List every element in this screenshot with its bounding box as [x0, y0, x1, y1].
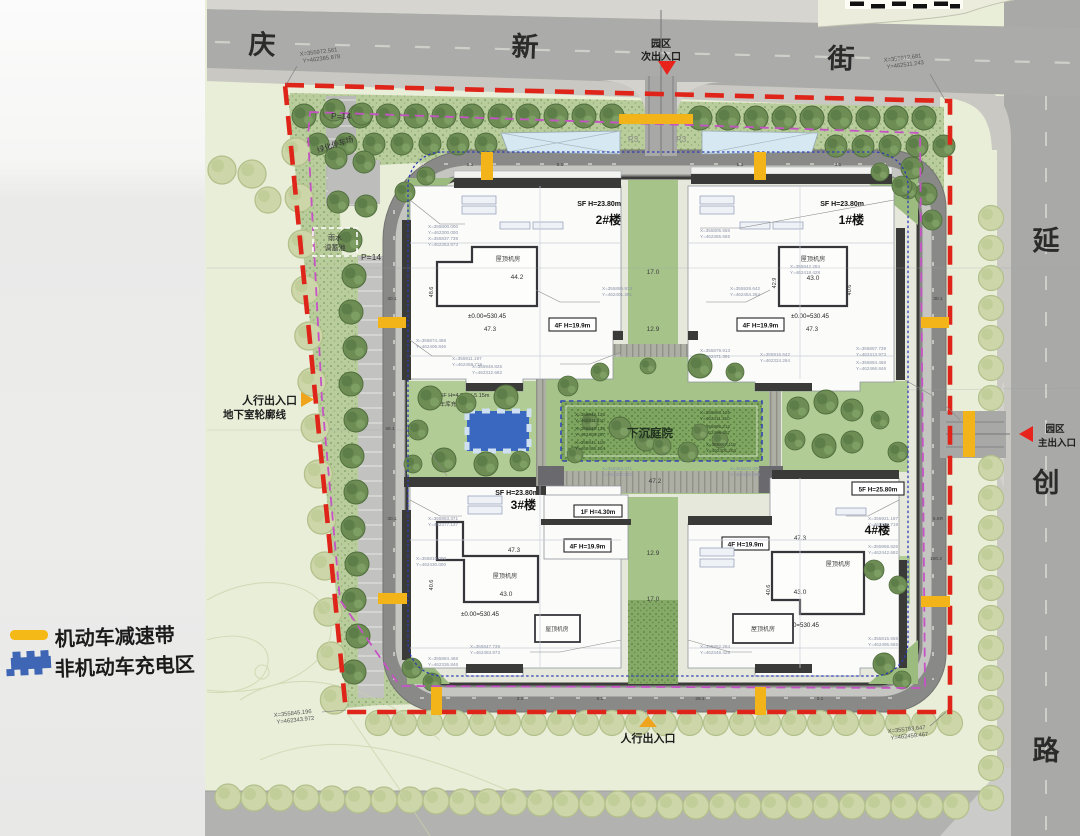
svg-text:X=355963.371: X=355963.371: [602, 466, 632, 471]
svg-text:Y=462307.137: Y=462307.137: [602, 472, 632, 477]
svg-text:47.3: 47.3: [484, 326, 497, 333]
svg-text:X=355953.371: X=355953.371: [428, 516, 458, 521]
svg-text:街: 街: [826, 44, 855, 75]
svg-text:X=355889.913: X=355889.913: [602, 286, 632, 291]
svg-text:屋顶机房: 屋顶机房: [496, 255, 521, 263]
svg-text:3.1: 3.1: [517, 696, 524, 702]
svg-text:±0.00=530.45: ±0.00=530.45: [791, 313, 830, 320]
svg-text:5F H=25.80m: 5F H=25.80m: [859, 487, 898, 494]
svg-text:43.0: 43.0: [500, 591, 513, 598]
svg-text:±0.00=530.45: ±0.00=530.45: [461, 611, 500, 618]
svg-text:园区: 园区: [1045, 424, 1065, 435]
svg-text:30.1: 30.1: [387, 516, 397, 522]
svg-text:2#楼: 2#楼: [596, 212, 621, 227]
svg-text:X=355841.118: X=355841.118: [575, 440, 605, 445]
svg-text:26.1: 26.1: [695, 696, 705, 702]
svg-text:4F H=19.9m: 4F H=19.9m: [555, 323, 591, 330]
svg-text:Y=462324.264: Y=462324.264: [760, 358, 790, 363]
svg-text:X=355847.739: X=355847.739: [470, 644, 500, 649]
svg-text:P=14: P=14: [331, 111, 351, 121]
svg-text:5.1: 5.1: [737, 162, 744, 168]
svg-text:P=14: P=14: [361, 252, 381, 262]
svg-text:4F H=19.9m: 4F H=19.9m: [728, 542, 764, 549]
svg-text:47.2: 47.2: [649, 478, 662, 485]
svg-text:X=355810.000: X=355810.000: [416, 556, 446, 561]
svg-text:X=355916.642: X=355916.642: [760, 352, 790, 357]
svg-text:X=355897.118: X=355897.118: [706, 442, 736, 447]
svg-text:100.2: 100.2: [930, 556, 942, 562]
svg-text:主出入口: 主出入口: [1038, 437, 1076, 449]
svg-text:下沉庭院: 下沉庭院: [627, 426, 673, 440]
svg-text:雨水: 雨水: [328, 233, 342, 242]
svg-text:30.1: 30.1: [387, 296, 397, 302]
svg-text:5.1: 5.1: [557, 162, 564, 168]
svg-text:X=355958.826: X=355958.826: [868, 544, 898, 549]
svg-text:X=355842.125: X=355842.125: [575, 412, 605, 417]
svg-text:Y=462411.310: Y=462411.310: [700, 416, 730, 421]
svg-text:X=355800.000: X=355800.000: [428, 224, 458, 229]
svg-text:人行出入口: 人行出入口: [242, 393, 297, 407]
svg-text:路: 路: [1033, 735, 1061, 766]
svg-text:Y=462495.555: Y=462495.555: [868, 642, 898, 647]
svg-text:屋顶机房: 屋顶机房: [493, 572, 518, 580]
svg-text:X=355894.468: X=355894.468: [856, 360, 886, 365]
svg-text:Y=462413.973: Y=462413.973: [856, 352, 886, 357]
svg-text:Y=462401.391: Y=462401.391: [602, 292, 632, 297]
svg-text:X=355842.125: X=355842.125: [575, 426, 605, 431]
svg-text:42.9: 42.9: [772, 278, 778, 289]
svg-text:园区: 园区: [651, 38, 671, 50]
svg-text:X=355926.642: X=355926.642: [730, 286, 760, 291]
svg-text:17.0: 17.0: [647, 269, 660, 276]
svg-text:40.6: 40.6: [766, 585, 772, 596]
svg-text:屋顶机房: 屋顶机房: [545, 625, 568, 633]
svg-text:Y=462300.000: Y=462300.000: [428, 230, 458, 235]
svg-text:4F H=19.9m: 4F H=19.9m: [570, 544, 606, 551]
svg-text:5.6R: 5.6R: [933, 516, 944, 522]
svg-text:Y=462483.973: Y=462483.973: [470, 650, 500, 655]
svg-text:Y=462418.428: Y=462418.428: [790, 270, 820, 275]
svg-text:Y=462466.846: Y=462466.846: [856, 366, 886, 371]
svg-text:17.0: 17.0: [647, 596, 660, 603]
svg-text:Y=462411.310: Y=462411.310: [575, 418, 605, 423]
svg-text:屋顶机房: 屋顶机房: [801, 255, 826, 263]
svg-text:44.2: 44.2: [511, 274, 524, 281]
svg-text:5.1: 5.1: [597, 696, 604, 702]
svg-text:地下室轮廓线: 地下室轮廓线: [223, 408, 286, 421]
svg-text:Y=462471.391: Y=462471.391: [700, 354, 730, 359]
svg-text:屋顶机房: 屋顶机房: [826, 560, 851, 568]
svg-text:调蓄池: 调蓄池: [325, 243, 346, 252]
svg-text:SF H=23.80m: SF H=23.80m: [577, 201, 621, 208]
svg-text:26.1: 26.1: [385, 426, 395, 432]
svg-text:43.0: 43.0: [807, 275, 820, 282]
svg-text:Y=462312.682: Y=462312.682: [472, 370, 502, 375]
svg-text:X=355820.000: X=355820.000: [730, 466, 760, 471]
svg-text:X=355893.125: X=355893.125: [700, 410, 730, 415]
svg-text:屋顶机房: 屋顶机房: [751, 625, 775, 633]
svg-text:47.3: 47.3: [508, 547, 521, 554]
svg-text:3.1: 3.1: [817, 696, 824, 702]
svg-text:延: 延: [1032, 226, 1061, 256]
svg-text:Y=462336.846: Y=462336.846: [428, 662, 458, 667]
svg-text:Y=462442.682: Y=462442.682: [868, 550, 898, 555]
svg-text:12.9: 12.9: [647, 550, 660, 557]
svg-text:3.1: 3.1: [835, 162, 842, 168]
svg-text:X=355815.555: X=355815.555: [868, 636, 898, 641]
svg-text:Y=462405.204: Y=462405.204: [706, 448, 736, 453]
svg-text:R3: R3: [628, 135, 639, 144]
svg-text:Y=462408.257: Y=462408.257: [575, 432, 605, 437]
svg-text:40.6: 40.6: [847, 285, 853, 296]
svg-text:3.1: 3.1: [467, 162, 474, 168]
svg-text:X=355884.468: X=355884.468: [428, 656, 458, 661]
svg-text:X=355837.739: X=355837.739: [428, 236, 458, 241]
svg-text:X=355948.826: X=355948.826: [472, 364, 502, 369]
svg-text:12.9: 12.9: [647, 326, 660, 333]
svg-text:Y=462353.973: Y=462353.973: [428, 242, 458, 247]
svg-text:庆: 庆: [248, 29, 276, 61]
svg-text:X=355842.284: X=355842.284: [790, 264, 820, 269]
svg-text:1F H=4.30m: 1F H=4.30m: [581, 509, 616, 516]
svg-text:X=355857.739: X=355857.739: [856, 346, 886, 351]
svg-text:40.6: 40.6: [429, 580, 435, 591]
svg-text:X=355874.468: X=355874.468: [416, 338, 446, 343]
svg-text:新: 新: [511, 31, 539, 63]
svg-text:Y=462405.204: Y=462405.204: [575, 446, 605, 451]
svg-text:30.1: 30.1: [933, 296, 943, 302]
svg-text:Y=462406.846: Y=462406.846: [416, 344, 446, 349]
svg-text:Y=462377.137: Y=462377.137: [428, 522, 458, 527]
svg-text:4F H=19.9m: 4F H=19.9m: [743, 323, 779, 330]
svg-text:X=355879.913: X=355879.913: [700, 348, 730, 353]
svg-text:±0.00=530.45: ±0.00=530.45: [468, 313, 507, 320]
svg-text:Y=462389.719: Y=462389.719: [868, 522, 898, 527]
svg-text:Y=462365.555: Y=462365.555: [700, 234, 730, 239]
svg-text:Y=462454.264: Y=462454.264: [730, 292, 760, 297]
svg-text:X=355805.555: X=355805.555: [700, 228, 730, 233]
svg-text:1#楼: 1#楼: [839, 212, 864, 227]
svg-text:Y=462360.000: Y=462360.000: [730, 472, 760, 477]
svg-text:Y=462430.000: Y=462430.000: [416, 562, 446, 567]
svg-text:人行出入口: 人行出入口: [621, 731, 676, 745]
svg-text:3#楼: 3#楼: [511, 497, 536, 512]
svg-text:创: 创: [1032, 468, 1060, 498]
svg-text:X=355911.197: X=355911.197: [452, 356, 482, 361]
svg-text:48.6: 48.6: [429, 287, 435, 298]
svg-text:X=355921.197: X=355921.197: [868, 516, 898, 521]
svg-text:47.3: 47.3: [806, 326, 819, 333]
svg-text:R3: R3: [676, 135, 687, 144]
